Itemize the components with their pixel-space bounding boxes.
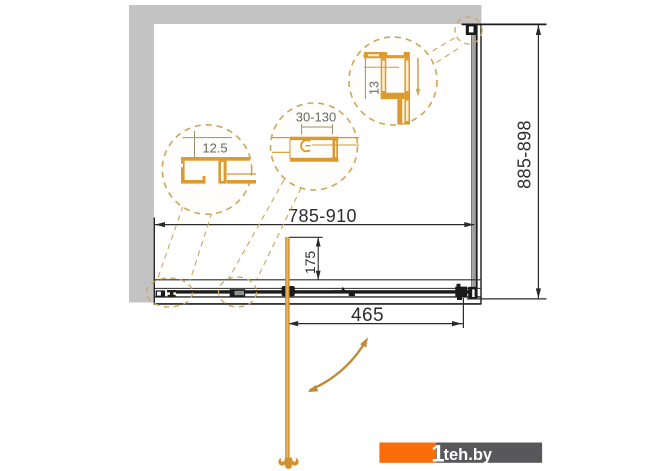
svg-text:teh.by: teh.by xyxy=(444,446,493,464)
svg-text:12.5: 12.5 xyxy=(202,141,227,156)
svg-text:30-130: 30-130 xyxy=(296,110,336,125)
svg-text:13: 13 xyxy=(368,81,382,95)
svg-text:885-898: 885-898 xyxy=(515,120,535,189)
svg-text:785-910: 785-910 xyxy=(288,206,357,226)
svg-text:175: 175 xyxy=(302,251,318,275)
svg-text:465: 465 xyxy=(351,305,384,326)
